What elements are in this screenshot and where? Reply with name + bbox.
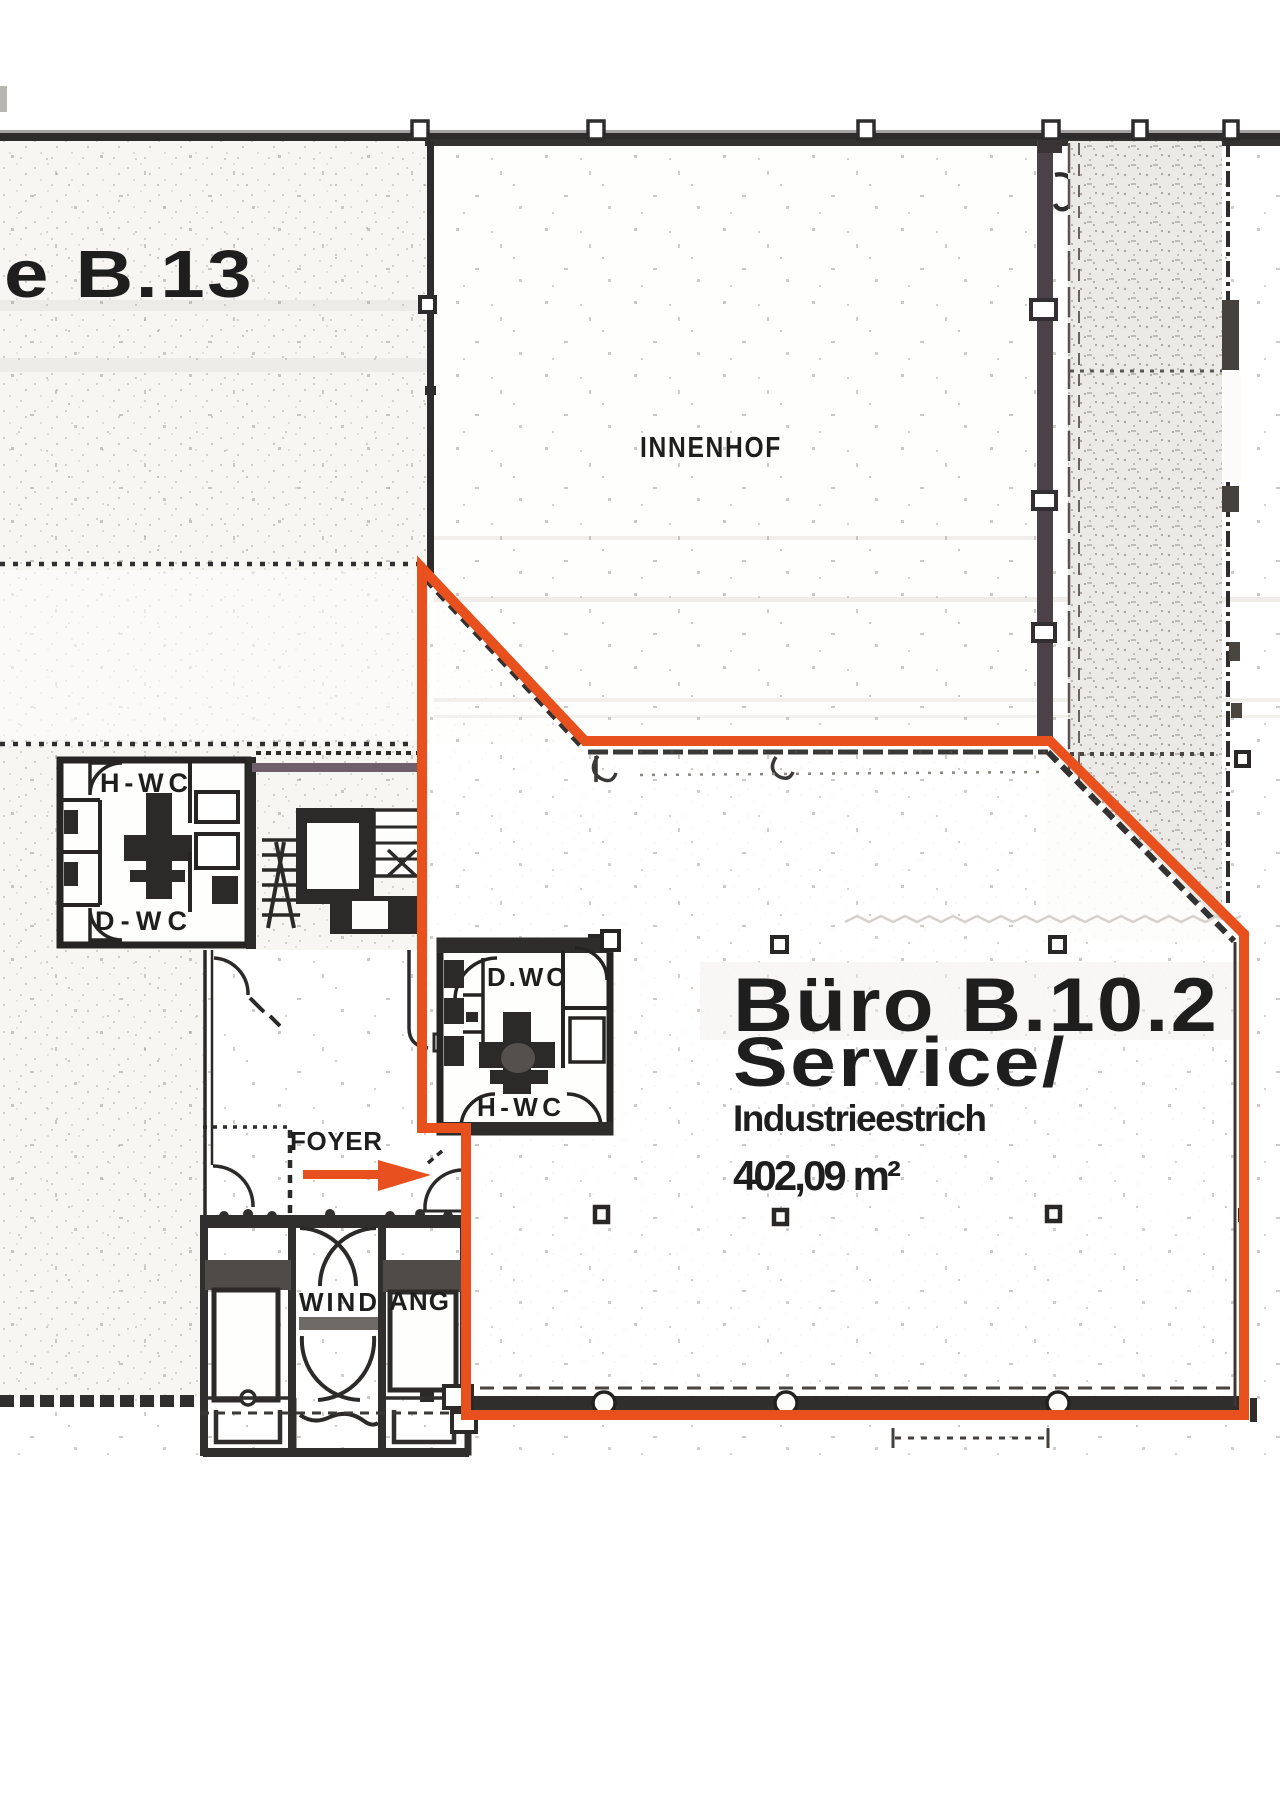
- svg-text:ANG: ANG: [389, 1286, 449, 1316]
- svg-text:402,09 m²: 402,09 m²: [733, 1152, 901, 1199]
- svg-text:Industrieestrich: Industrieestrich: [733, 1098, 987, 1139]
- svg-text:INNENHOF: INNENHOF: [640, 432, 782, 464]
- svg-text:D-WC: D-WC: [95, 906, 187, 936]
- svg-text:H-WC: H-WC: [100, 768, 188, 798]
- svg-text:Service/: Service/: [733, 1023, 1067, 1101]
- svg-text:e B.13: e B.13: [4, 237, 254, 312]
- svg-text:FOYER: FOYER: [290, 1126, 384, 1156]
- svg-text:WIND: WIND: [299, 1287, 377, 1317]
- svg-text:H-WC: H-WC: [477, 1092, 561, 1122]
- svg-text:D.WC: D.WC: [487, 962, 565, 992]
